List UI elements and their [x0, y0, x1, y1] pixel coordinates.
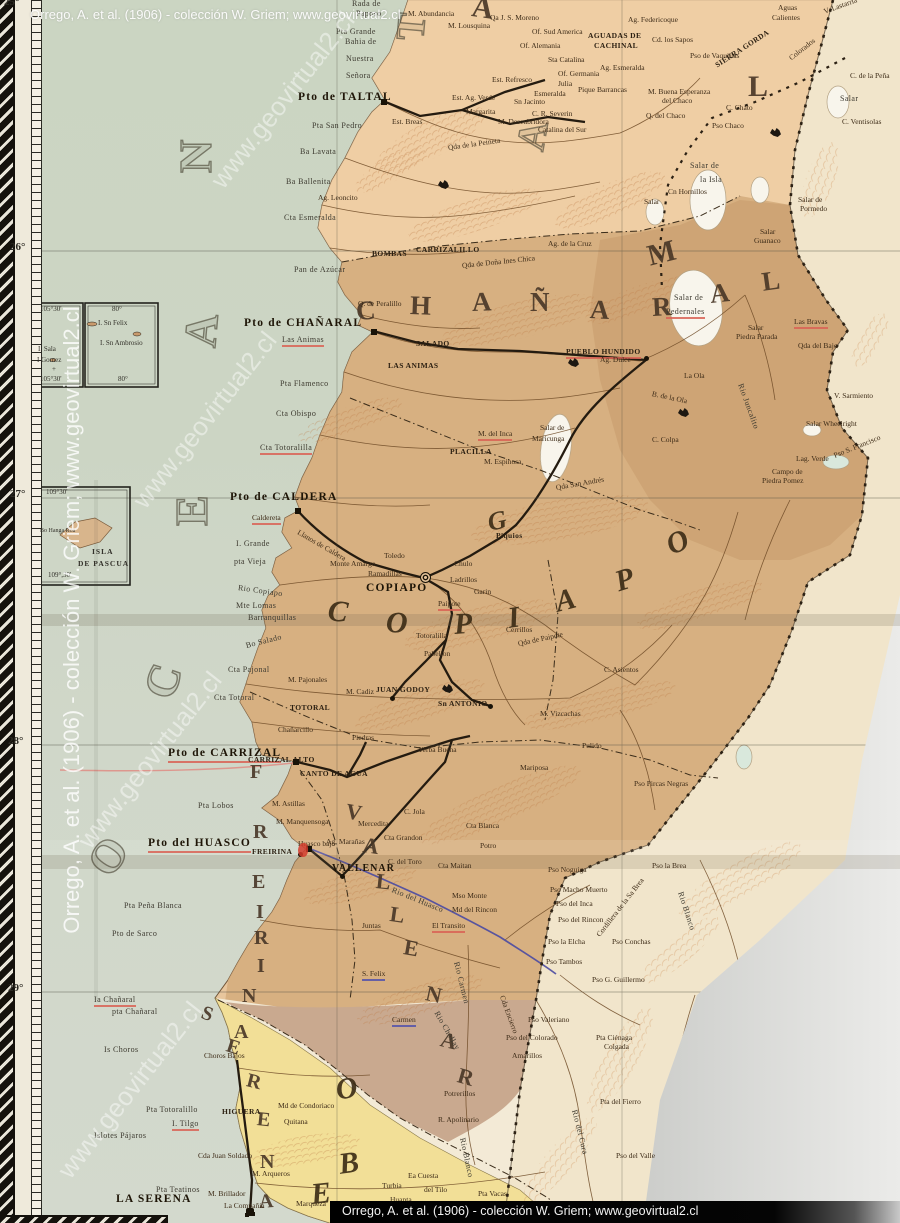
region-letter: B — [337, 1147, 361, 1179]
town-dot-juan-godoy — [390, 696, 395, 701]
fold-line-vertical — [94, 480, 98, 1000]
region-letter-chanaral: A — [709, 279, 731, 308]
map-label: Salar de — [540, 424, 564, 432]
latitude-ruler — [31, 0, 42, 1223]
map-label: Pedernales — [666, 308, 705, 319]
map-label: Juntas — [362, 922, 381, 930]
map-label: S. Felix — [362, 970, 385, 981]
map-frame-left — [0, 0, 15, 1223]
map-label: Ia Chañaral — [94, 996, 136, 1007]
map-label: Pto de TALTAL — [298, 92, 392, 104]
map-label: Salar — [748, 324, 763, 332]
map-label: Pso Noguiga — [548, 866, 587, 874]
map-label: Marqueza — [296, 1200, 326, 1208]
map-label: Pso Valeriano — [528, 1016, 569, 1024]
region-letter-freirina: E — [252, 872, 265, 892]
map-label: Piedra Pomez — [762, 477, 803, 485]
map-label: Ag. Esmeralda — [600, 64, 645, 72]
map-label: 80° — [118, 376, 128, 383]
map-label: C. Colpa — [652, 436, 679, 444]
map-label: M. Espinosa — [484, 458, 522, 466]
region-letter-chanaral: H — [410, 292, 432, 320]
map-label: Cta Totoralilla — [260, 444, 312, 455]
map-label: Pto de CALDERA — [230, 492, 338, 504]
map-label: M. del Inca — [478, 430, 512, 441]
port-symbol-carrizal — [293, 759, 299, 765]
map-label: Carmen — [392, 1016, 416, 1027]
map-label: Mso Monte — [452, 892, 487, 900]
map-label: Pso Tambos — [546, 958, 582, 966]
city-symbol-la-serena — [246, 1208, 254, 1216]
map-label: Cta Pajonal — [228, 666, 270, 674]
map-label: Pta Vacas — [478, 1190, 507, 1198]
region-letter-oceano: E — [169, 495, 215, 526]
map-label: Ag. Federicoque — [628, 16, 678, 24]
map-label: Totoralilla — [416, 632, 447, 640]
map-label: pta Vieja — [234, 558, 266, 566]
map-label: C. Ventisolas — [842, 118, 881, 126]
map-label: Pso Macho Muerto — [550, 886, 608, 894]
port-symbol-chanaral — [371, 329, 377, 335]
map-label: 29° — [8, 983, 23, 994]
map-label: COPIAPO — [366, 583, 427, 595]
region-letter-copiapo: C — [326, 596, 349, 628]
map-label: Cta Obispo — [276, 410, 316, 418]
map-label: Est. Ag. Verde — [452, 94, 495, 102]
map-label: Caldereta — [252, 514, 281, 525]
map-label: Amarillos — [512, 1052, 542, 1060]
region-letter-copiapo: P — [453, 609, 473, 640]
port-red-mark-huasco — [298, 843, 308, 857]
map-label: Pso Conchas — [612, 938, 651, 946]
map-label: C. Ch­ato — [726, 104, 753, 112]
map-label: Yerba Buena — [418, 746, 457, 754]
map-label: pta Chañaral — [112, 1008, 157, 1016]
map-label: CARRIZALILLO — [416, 246, 480, 254]
map-label: Piedra Parada — [736, 333, 777, 341]
map-label: Pta Peña Blanca — [124, 902, 182, 910]
map-label: Potrerillos — [444, 1090, 475, 1098]
map-label: Pto del HUASCO — [148, 838, 251, 853]
map-label: Salar Wheelright — [806, 420, 857, 428]
map-label: M. Buena Esperanza — [648, 88, 710, 96]
map-label: Ladrillos — [450, 576, 477, 584]
map-label: SALADO — [416, 340, 450, 348]
map-label: 80° — [112, 306, 122, 313]
region-letter-chanaral: A — [589, 296, 610, 324]
map-label: HIGUERA — [222, 1108, 261, 1116]
map-label: Ag. Dulce — [600, 356, 631, 364]
watermark-credit-bar: Orrego, A. et al. (1906) - colección W. … — [330, 1201, 900, 1223]
map-label: Salar de — [674, 294, 703, 302]
map-label: Pta Totoralillo — [146, 1106, 198, 1114]
map-label: C. Jola — [404, 808, 425, 816]
map-label: Qda del Bajo — [798, 342, 838, 350]
map-label: I. Grande — [236, 540, 270, 548]
region-letter-freirina: N — [242, 986, 256, 1006]
map-label: PLACILLA — [450, 448, 492, 456]
map-label: CANTO DE AGUA — [300, 770, 368, 778]
map-label: C. R. Severin — [532, 110, 572, 118]
map-label: Choros Bajos — [204, 1052, 245, 1060]
map-frame-bottom — [0, 1215, 168, 1223]
map-label: la Isla — [700, 176, 722, 184]
map-label: Chañarcillo — [278, 726, 313, 734]
map-label: Salar de — [798, 196, 822, 204]
map-label: Mercedita — [358, 820, 388, 828]
map-label: Pto de Sarco — [112, 930, 157, 938]
port-symbol-taltal — [381, 99, 387, 105]
region-letter-freirina: I — [256, 902, 264, 922]
map-label: Margarita — [466, 108, 495, 116]
map-label: 26° — [10, 242, 25, 253]
map-label: Est. Refresco — [492, 76, 532, 84]
map-label: M. Manquensoga — [276, 818, 329, 826]
map-label: La Compañia — [224, 1202, 265, 1210]
map-label: Pso Chaco — [712, 122, 744, 130]
map-label: V. Sarmiento — [834, 392, 873, 400]
map-label: Ramadillas — [368, 570, 402, 578]
town-dot-pueblo-hundido — [644, 356, 649, 361]
map-label: Pabellon — [424, 650, 450, 658]
map-label: M. Lousquina — [448, 22, 490, 30]
map-label: Salar — [760, 228, 775, 236]
fold-line — [0, 614, 900, 626]
map-label: Esmeralda — [534, 90, 566, 98]
map-label: Calientes — [772, 14, 800, 22]
map-label: Pta Lobos — [198, 802, 234, 810]
map-label: Cta Grandon — [384, 834, 423, 842]
map-label: I Gomez — [37, 357, 61, 364]
map-label: M. Vizcachas — [540, 710, 581, 718]
map-label: Chulo — [454, 560, 472, 568]
map-label: Campo de — [772, 468, 803, 476]
historic-map-atacama: 25°26°27°28°29°105°30'105°30'80°80°I. Sn… — [0, 0, 900, 1223]
map-label: TOTORAL — [290, 704, 330, 712]
map-label: Cn Hornillos — [668, 188, 707, 196]
map-label: Ba Lavata — [300, 148, 336, 156]
map-label: Cerrillos — [506, 626, 532, 634]
map-label: Potro — [480, 842, 496, 850]
map-label: Salar — [644, 198, 659, 206]
map-label: DE PASCUA — [78, 560, 129, 568]
map-label: ISLA — [92, 548, 114, 556]
map-label: Turbia — [382, 1182, 402, 1190]
region-letter-chanaral: A — [472, 288, 492, 316]
map-label: Est. Breas — [392, 118, 422, 126]
map-label: Julia — [558, 80, 572, 88]
map-label: C. de la Peña — [850, 72, 890, 80]
map-label: Pso G. Guillermo — [592, 976, 645, 984]
map-label: Señora — [346, 72, 371, 80]
map-label: LAS ANIMAS — [388, 362, 438, 370]
map-label: M. Abundancia — [408, 10, 454, 18]
map-label: JUAN GODOY — [376, 686, 430, 694]
map-label: Pso del Rincon — [558, 916, 603, 924]
port-symbol-caldera — [295, 508, 301, 514]
town-dot-san-antonio — [488, 704, 493, 709]
map-label: Quitana — [284, 1118, 308, 1126]
map-label: Nuestra — [346, 55, 374, 63]
map-label: Monte Amargo — [330, 560, 375, 568]
map-label: C. Asientos — [604, 666, 639, 674]
map-label: Is Choros — [104, 1046, 139, 1054]
map-label: Toledo — [384, 552, 405, 560]
map-label: I. Sn Ambrosio — [100, 340, 143, 347]
city-symbol-copiapo — [420, 572, 431, 583]
map-margin — [15, 0, 31, 1223]
region-letter-oceano: A — [177, 312, 226, 349]
map-label: Ag. Leoncito — [318, 194, 358, 202]
map-label: M. Arqueros — [252, 1170, 290, 1178]
map-label: Lag. Verde — [796, 455, 829, 463]
region-letter-chanaral: L — [760, 267, 782, 296]
map-label: Md de Condoriaco — [278, 1102, 334, 1110]
map-label: Las Animas — [282, 336, 324, 347]
map-label: M. Cadiz — [346, 688, 374, 696]
map-label: Pso la Elcha — [548, 938, 585, 946]
map-label: Ba Ballenita — [286, 178, 331, 186]
map-label: Cda Juan Soldado — [198, 1152, 252, 1160]
map-label: + — [52, 366, 56, 373]
map-label: CACHINAL — [594, 42, 638, 50]
map-label: Pan de Azúcar — [294, 266, 345, 274]
map-label: Las Bravas — [794, 318, 828, 329]
watermark-credit-left: Orrego, A. et al. (1906) - colección W. … — [59, 120, 85, 1120]
map-label: Pormedo — [800, 205, 827, 213]
map-label: Sta Catalina — [548, 56, 584, 64]
map-label: Salar de — [690, 162, 719, 170]
region-letter: L — [748, 72, 768, 102]
map-label: FREIRINA — [252, 848, 292, 856]
map-label: Of. Alemania — [520, 42, 560, 50]
map-label: Piedras — [352, 734, 374, 742]
region-letter-copiapo: O — [385, 608, 408, 639]
map-label: Piquios — [496, 532, 523, 540]
map-label: Sn Jacinto — [514, 98, 545, 106]
map-label: LA SERENA — [116, 1194, 192, 1206]
map-label: M. Brillador — [208, 1190, 246, 1198]
watermark-credit-bottom: Orrego, A. et al. (1906) - colección W. … — [342, 1204, 698, 1218]
map-label: Q. de Peralillo — [358, 300, 402, 308]
map-label: 28° — [8, 736, 23, 747]
map-label: Catalina del Sur — [538, 126, 586, 134]
map-label: Salar — [840, 95, 858, 103]
map-label: M. Pajonales — [288, 676, 327, 684]
town-dot-vallenar — [340, 874, 345, 879]
map-label: Q. del Chaco — [646, 112, 685, 120]
map-label: Ea Cuesta — [408, 1172, 438, 1180]
map-label: del Chaco — [662, 97, 692, 105]
map-label: Pso del Inca — [556, 900, 593, 908]
map-label: Pta San Pedro — [312, 122, 362, 130]
region-letter-vallenar: L — [388, 903, 406, 927]
map-label: La Ola — [684, 372, 705, 380]
map-label: CARRIZAL ALTO — [248, 756, 315, 764]
map-label: Pso la Brea — [652, 862, 686, 870]
map-label: Barranquillas — [248, 614, 296, 622]
region-letter-freirina: F — [250, 762, 262, 782]
map-label: Pso Pircas Negras — [634, 780, 688, 788]
map-label: R. Apolinario — [438, 1116, 479, 1124]
map-label: Paipote — [438, 600, 461, 611]
region-letter-freirina: I — [257, 956, 265, 976]
map-label: Mte Lomas — [236, 602, 276, 610]
map-label: Sn ANTONIO — [438, 700, 488, 708]
map-label: Pta del Fierro — [600, 1098, 641, 1106]
map-label: Pulido — [582, 742, 602, 750]
map-label: I. Tilgo — [172, 1120, 199, 1131]
map-label: Cta Esmeralda — [284, 214, 336, 222]
map-label: BOMBAS — [372, 250, 407, 258]
map-label: AGUADAS DE — [588, 32, 641, 40]
map-label: I. Sala — [38, 346, 56, 353]
map-label: Cta Maitan — [438, 862, 472, 870]
map-label: Pique Barrancas — [578, 86, 627, 94]
region-letter-freirina: R — [253, 822, 267, 842]
map-label: Cd. los Sapos — [652, 36, 693, 44]
map-label: 27° — [10, 489, 25, 500]
map-label: Cta Blanca — [466, 822, 499, 830]
map-label: Pso del Valle — [616, 1152, 655, 1160]
map-label: Garin — [474, 588, 491, 596]
map-label: Maricunga — [532, 435, 565, 443]
map-label: Of. Sud America — [532, 28, 583, 36]
map-label: Aguas — [778, 4, 797, 12]
map-label: del Tilo — [424, 1186, 447, 1194]
map-label: Md del Rincon — [452, 906, 497, 914]
map-label: Pta Ciénaga — [596, 1034, 632, 1042]
map-label: El Transito — [432, 922, 465, 933]
map-label: M. Astillas — [272, 800, 305, 808]
region-letter-freirina: R — [254, 928, 268, 948]
map-label: Qa J. S. Moreno — [490, 14, 539, 22]
map-label: Colgada — [604, 1043, 629, 1051]
region-letter-chanaral: Ñ — [530, 289, 550, 316]
map-label: Ag. de la Cruz — [548, 240, 592, 248]
map-label: 25° — [4, 0, 19, 8]
map-label: Mariposa — [520, 764, 548, 772]
map-label: I. Sn Felix — [98, 320, 127, 327]
map-label: VALLENAR — [332, 864, 395, 874]
map-label: Guanaco — [754, 237, 781, 245]
map-label: Pso del Colorado — [506, 1034, 558, 1042]
map-label: Pta Flamenco — [280, 380, 329, 388]
map-label: Of. Germania — [558, 70, 599, 78]
